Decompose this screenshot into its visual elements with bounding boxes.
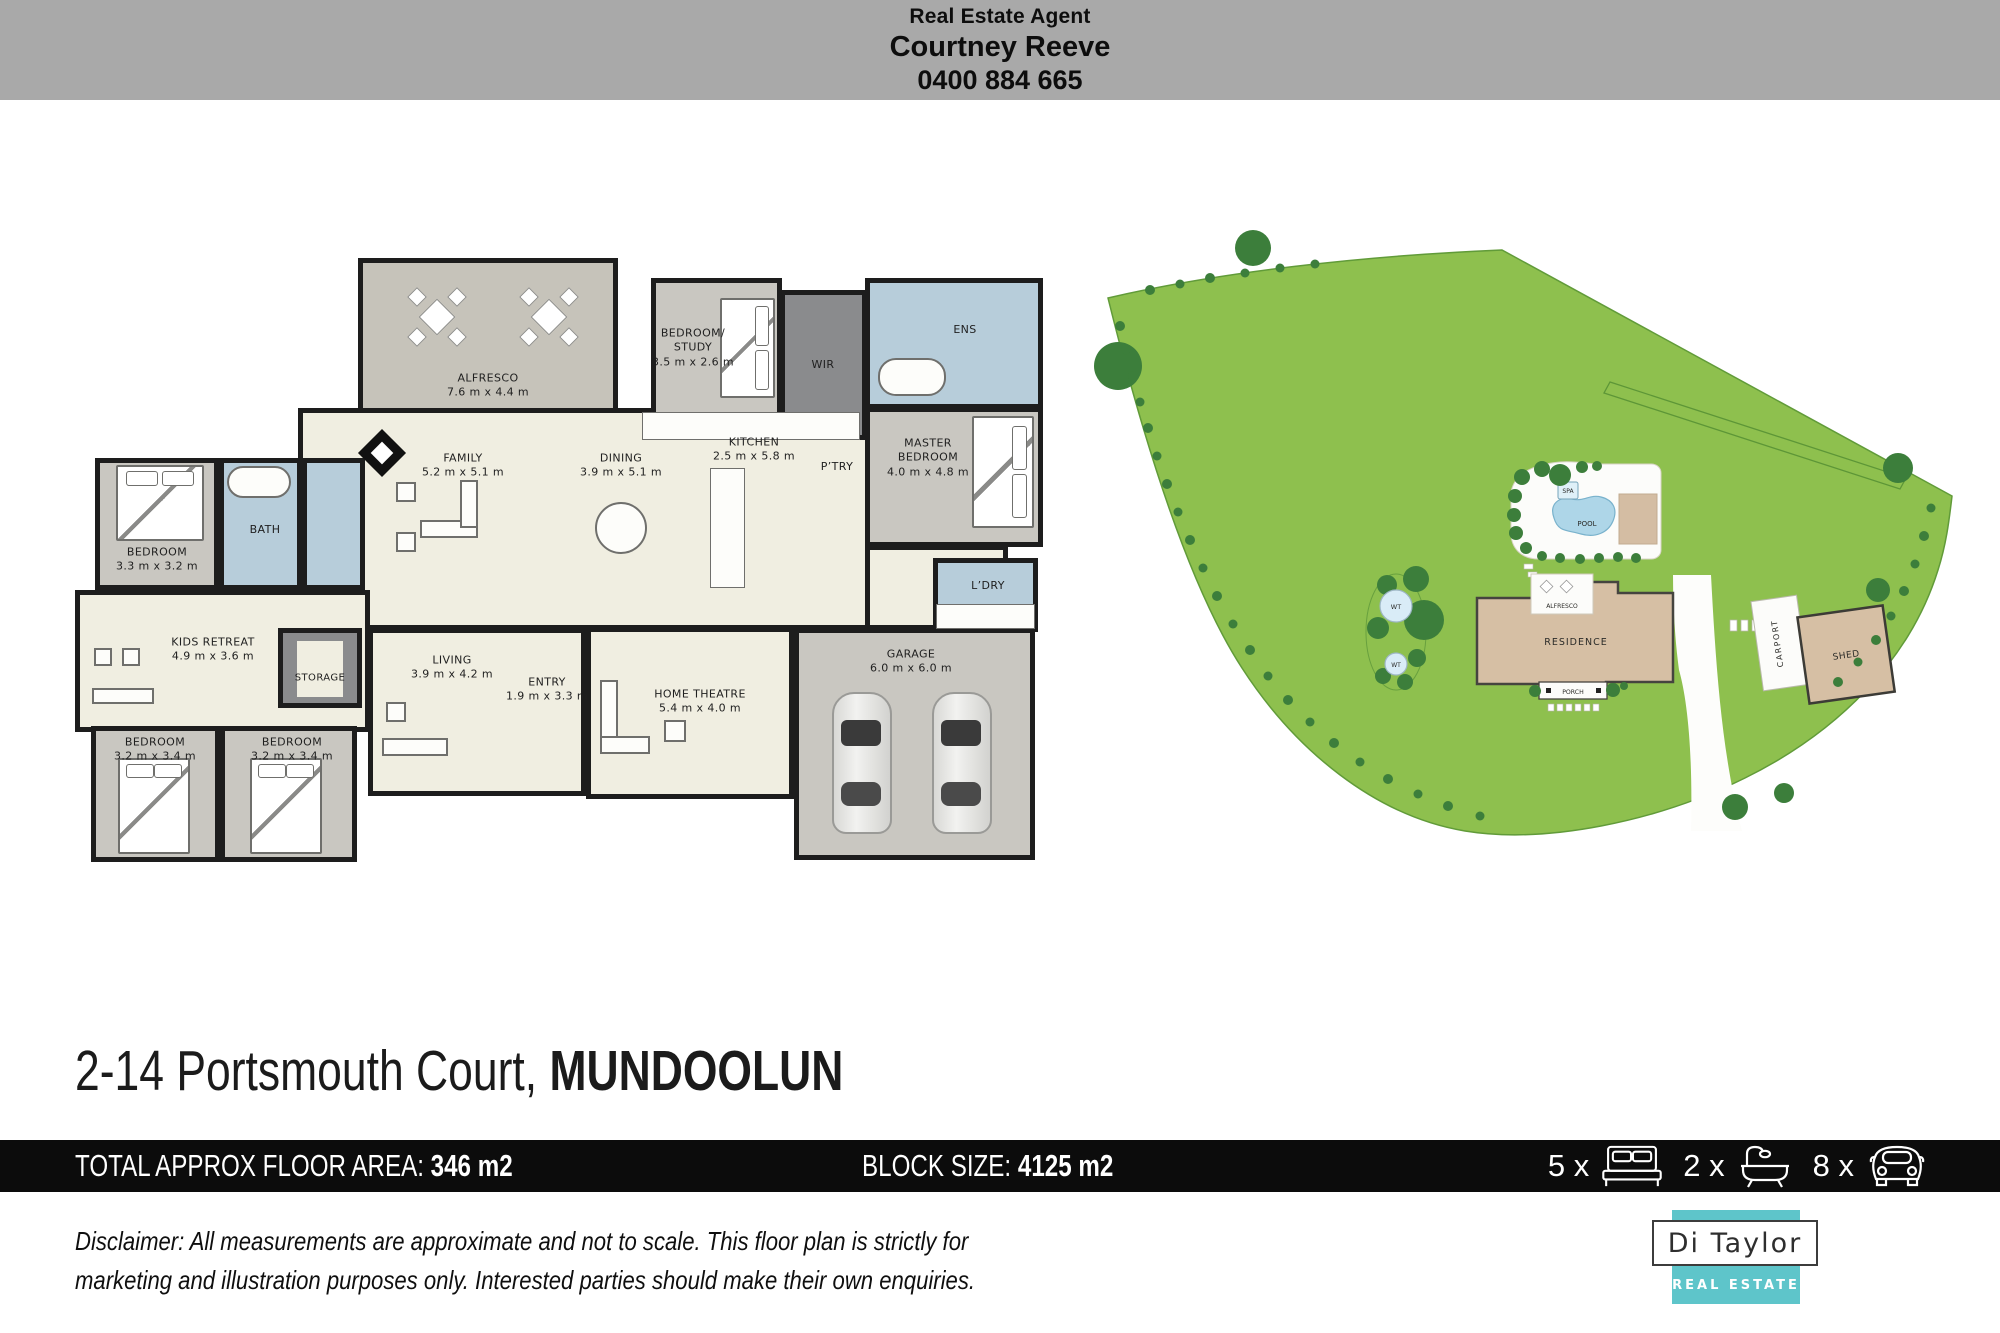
label-wt1: WT	[1391, 603, 1401, 611]
site-plan: SPA POOL ALFRESCO RESIDENCE PORCH CARPOR…	[1090, 230, 1970, 850]
label-bedroom-left: BEDROOM3.3 m x 3.2 m	[116, 546, 198, 575]
info-bar: TOTAL APPROX FLOOR AREA: 346 m2 BLOCK SI…	[0, 1140, 2000, 1192]
block-size-value: 4125 m2	[1018, 1148, 1113, 1183]
label-bedroom-bl1: BEDROOM3.2 m x 3.4 m	[114, 736, 196, 765]
car-icon	[1866, 1143, 1928, 1189]
label-site-alfresco: ALFRESCO	[1546, 603, 1578, 610]
agent-header: Real Estate Agent Courtney Reeve 0400 88…	[0, 0, 2000, 100]
logo-name: Di Taylor	[1652, 1220, 1818, 1266]
beds-count: 5 x	[1548, 1148, 1589, 1184]
label-living: LIVING3.9 m x 4.2 m	[411, 654, 493, 683]
floor-area-segment: TOTAL APPROX FLOOR AREA: 346 m2	[75, 1140, 636, 1192]
laundry-bench	[936, 604, 1035, 629]
kitchen-island	[710, 468, 745, 588]
bed-icon	[1601, 1144, 1663, 1188]
disclaimer: Disclaimer: All measurements are approxi…	[75, 1222, 1134, 1300]
room-alfresco	[358, 258, 618, 426]
living-chair	[386, 702, 406, 722]
beds-group: 5 x	[1548, 1144, 1663, 1188]
family-armchair	[396, 482, 416, 502]
label-family: FAMILY5.2 m x 5.1 m	[422, 452, 504, 481]
address-suburb: MUNDOOLUN	[549, 1039, 843, 1103]
bed-icon	[972, 416, 1034, 528]
family-sofa	[460, 480, 478, 528]
agent-phone: 0400 884 665	[917, 65, 1082, 96]
disclaimer-line1: Disclaimer: All measurements are approxi…	[75, 1226, 968, 1256]
page: Real Estate Agent Courtney Reeve 0400 88…	[0, 0, 2000, 1333]
label-garage: GARAGE6.0 m x 6.0 m	[870, 648, 952, 677]
block-size-label: BLOCK SIZE:	[862, 1148, 1018, 1183]
feature-icons: 5 x 2 x 8 x	[1548, 1140, 1928, 1192]
label-bath: BATH	[250, 523, 281, 537]
theatre-chair	[664, 720, 686, 742]
label-pantry: P’TRY	[821, 460, 854, 474]
address-street: 2-14 Portsmouth Court,	[75, 1039, 549, 1103]
label-kitchen: KITCHEN2.5 m x 5.8 m	[713, 436, 795, 465]
kids-chair	[122, 648, 140, 666]
family-armchair	[396, 532, 416, 552]
floor-area-value: 346 m2	[431, 1148, 513, 1183]
label-master-bedroom: MASTER BEDROOM4.0 m x 4.8 m	[876, 437, 981, 480]
label-wir: WIR	[812, 358, 835, 372]
agent-name: Courtney Reeve	[890, 31, 1111, 64]
room-powder	[302, 458, 365, 590]
floor-area-label: TOTAL APPROX FLOOR AREA:	[75, 1148, 431, 1183]
theatre-sofa	[600, 736, 650, 754]
label-ens: ENS	[953, 323, 976, 337]
baths-group: 2 x	[1683, 1142, 1792, 1190]
label-residence: RESIDENCE	[1544, 637, 1608, 648]
room-storage	[278, 628, 362, 708]
pool	[1553, 496, 1615, 535]
theatre-sofa	[600, 680, 618, 738]
porch-post	[1596, 688, 1601, 693]
car-icon	[932, 692, 992, 834]
logo-tagline: REAL ESTATE	[1672, 1272, 1800, 1299]
label-laundry: L’DRY	[971, 579, 1005, 593]
label-bedroom-bl2: BEDROOM3.2 m x 3.4 m	[251, 736, 333, 765]
disclaimer-line2: marketing and illustration purposes only…	[75, 1265, 975, 1295]
label-alfresco: ALFRESCO7.6 m x 4.4 m	[447, 372, 529, 401]
label-kids-retreat: KIDS RETREAT4.9 m x 3.6 m	[171, 636, 255, 665]
property-address: 2-14 Portsmouth Court, MUNDOOLUN	[75, 1038, 1060, 1104]
cars-group: 8 x	[1813, 1143, 1928, 1189]
bed-icon	[118, 758, 190, 854]
floor-plan: ALFRESCO7.6 m x 4.4 m BEDROOM/ STUDY3.5 …	[60, 250, 1045, 875]
porch-post	[1546, 688, 1551, 693]
bed-icon	[250, 758, 322, 854]
living-sofa	[382, 738, 448, 756]
bath-icon	[1737, 1142, 1793, 1190]
kids-sofa	[92, 688, 154, 704]
cars-count: 8 x	[1813, 1148, 1854, 1184]
label-dining: DINING3.9 m x 5.1 m	[580, 452, 662, 481]
label-home-theatre: HOME THEATRE5.4 m x 4.0 m	[654, 688, 746, 717]
label-spa: SPA	[1562, 488, 1574, 495]
label-bedroom-study: BEDROOM/ STUDY3.5 m x 2.6 m	[641, 327, 746, 370]
kids-chair	[94, 648, 112, 666]
bathtub-icon	[227, 466, 291, 498]
car-icon	[832, 692, 892, 834]
label-entry: ENTRY1.9 m x 3.3 m	[506, 676, 588, 705]
block-size-segment: BLOCK SIZE: 4125 m2	[862, 1140, 1184, 1192]
baths-count: 2 x	[1683, 1148, 1724, 1184]
pool-paving	[1619, 494, 1657, 544]
label-porch: PORCH	[1562, 689, 1584, 696]
bathtub-icon	[878, 358, 946, 396]
label-pool: POOL	[1577, 520, 1596, 528]
bed-icon	[116, 465, 204, 541]
label-storage: STORAGE	[295, 672, 345, 685]
dining-table-icon	[595, 502, 647, 554]
agent-role: Real Estate Agent	[909, 5, 1090, 29]
label-wt2: WT	[1391, 662, 1401, 669]
agency-logo: Di Taylor REAL ESTATE	[1652, 1210, 1818, 1304]
